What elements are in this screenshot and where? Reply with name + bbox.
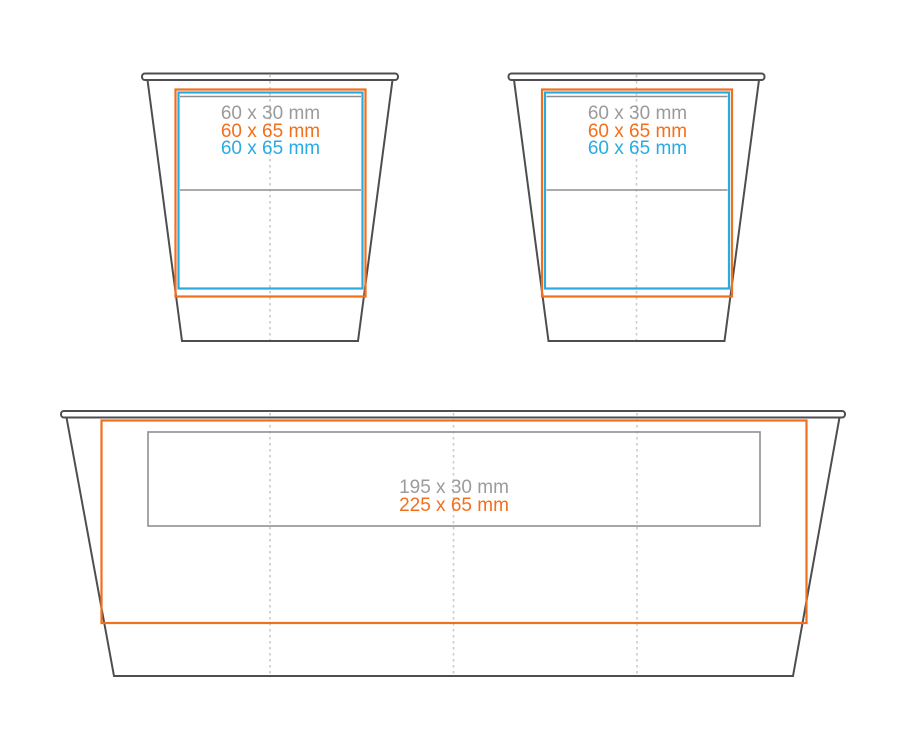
cup-left-label-gray: 60 x 30 mm [175, 105, 366, 123]
cup-right-label-gray: 60 x 30 mm [542, 105, 733, 123]
cup-left-dimension-labels: 60 x 30 mm 60 x 65 mm 60 x 65 mm [175, 105, 366, 158]
planter-dimension-labels: 195 x 30 mm 225 x 65 mm [148, 479, 760, 515]
cup-right-dimension-labels: 60 x 30 mm 60 x 65 mm 60 x 65 mm [542, 105, 733, 158]
print-area-diagram: 60 x 30 mm 60 x 65 mm 60 x 65 mm 60 x 30… [0, 0, 900, 741]
cup-right-label-blue: 60 x 65 mm [542, 140, 733, 158]
cup-left-label-blue: 60 x 65 mm [175, 140, 366, 158]
planter [61, 411, 845, 676]
planter-label-orange: 225 x 65 mm [148, 497, 760, 515]
diagram-canvas [0, 0, 900, 741]
